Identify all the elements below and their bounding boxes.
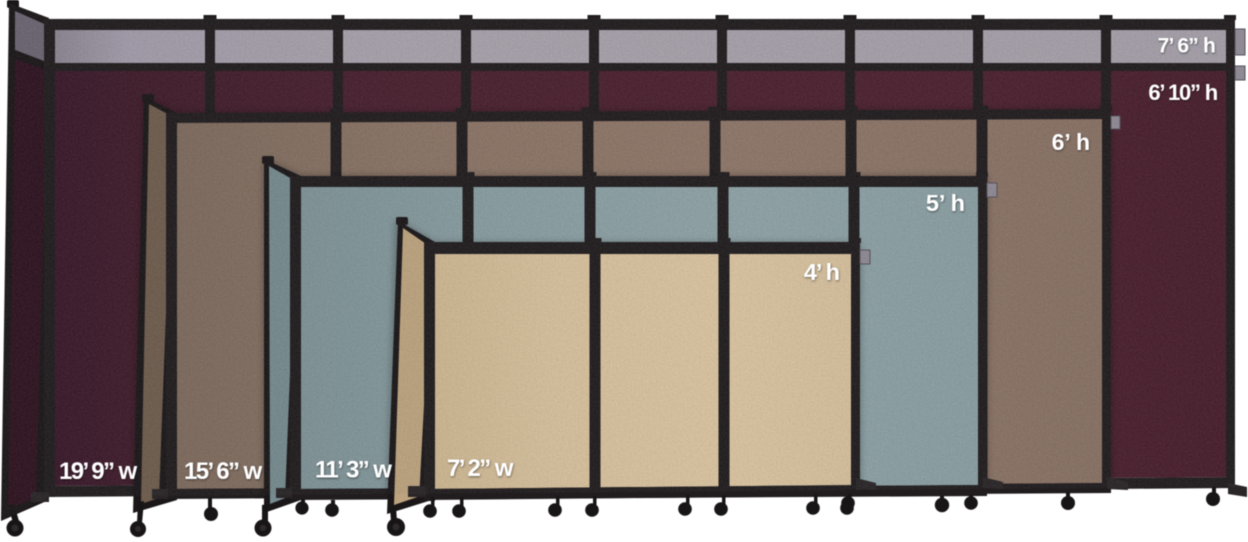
- svg-text:6’ 10” h: 6’ 10” h: [1148, 80, 1217, 105]
- svg-text:19’ 9” w: 19’ 9” w: [59, 458, 138, 485]
- svg-text:7’ 6” h: 7’ 6” h: [1158, 35, 1215, 58]
- svg-text:5’ h: 5’ h: [926, 190, 965, 216]
- svg-text:6’ h: 6’ h: [1052, 129, 1090, 155]
- svg-text:15’ 6” w: 15’ 6” w: [184, 458, 263, 485]
- svg-text:4’ h: 4’ h: [804, 259, 839, 285]
- svg-text:7’ 2” w: 7’ 2” w: [447, 455, 514, 482]
- svg-text:11’ 3” w: 11’ 3” w: [315, 457, 392, 484]
